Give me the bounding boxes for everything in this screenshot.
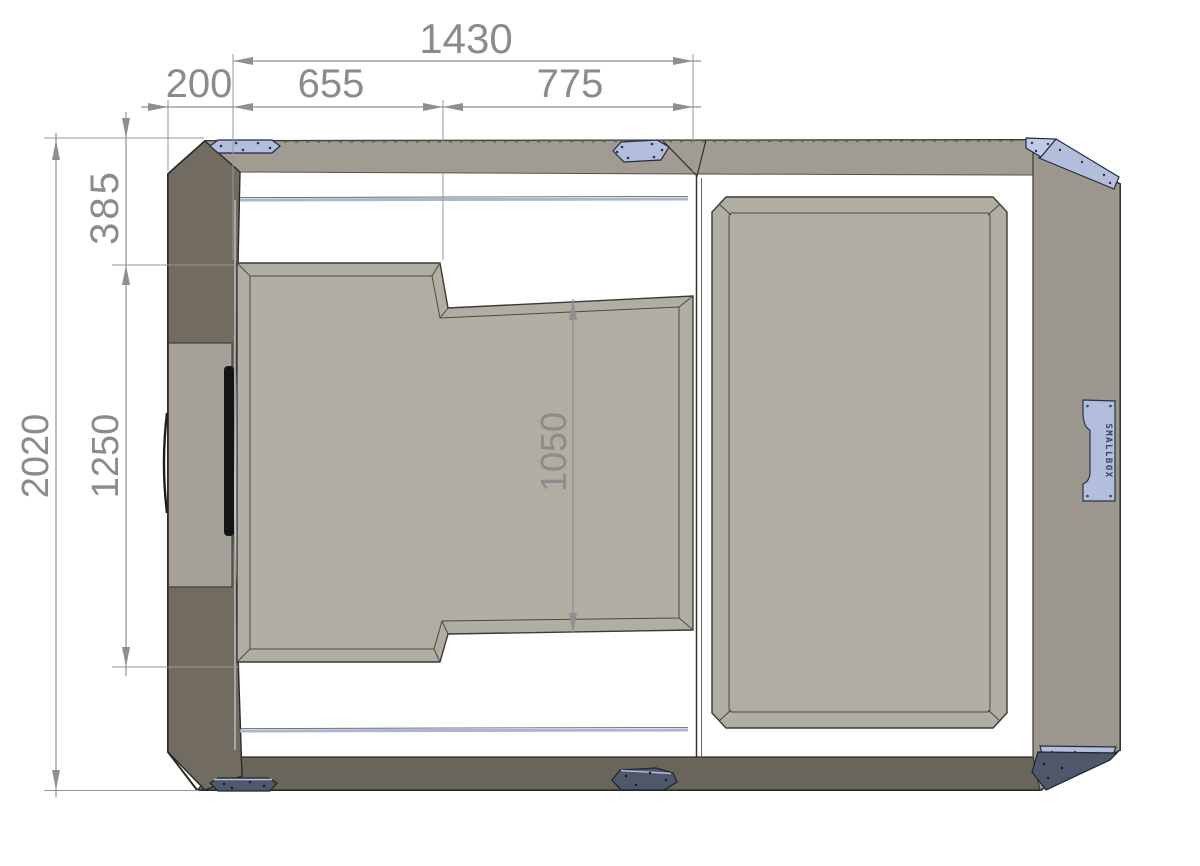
logo-text: SMALLBOX xyxy=(1103,423,1113,478)
bracket-top-left xyxy=(210,140,280,153)
technical-drawing-page: SMALLBOX xyxy=(0,0,1200,866)
bracket-bottom-middle xyxy=(612,768,677,790)
right-cover-panel xyxy=(712,197,1007,728)
lid-top-seam-blue xyxy=(240,199,688,200)
dim-inner-length: 1050 xyxy=(533,412,574,492)
dim-segment-left: 655 xyxy=(298,62,365,106)
dim-overall-length: 2020 xyxy=(15,414,57,499)
lid-panel-outer xyxy=(237,263,693,662)
dim-opening-length: 1250 xyxy=(85,414,127,499)
bracket-bottom-left xyxy=(210,778,277,791)
bracket-top-middle xyxy=(613,140,669,162)
dim-segment-right: 775 xyxy=(537,62,604,106)
bracket-bottom-right xyxy=(1032,746,1117,790)
lid-bottom-seam-blue xyxy=(240,730,688,731)
dim-overall-width: 1430 xyxy=(419,15,512,62)
lid-top-seam-shadow xyxy=(240,197,688,198)
dim-wall-offset: 200 xyxy=(166,62,233,106)
right-panel-outer xyxy=(712,197,1007,728)
box-top-view-drawing: SMALLBOX xyxy=(0,0,1200,866)
left-side-door xyxy=(169,343,232,587)
lid-bottom-seam-shadow xyxy=(240,728,688,729)
door-handle xyxy=(224,366,234,536)
lid-panel xyxy=(237,263,693,662)
dim-top-inset: 385 xyxy=(83,169,127,245)
door-handle-recess-curve xyxy=(164,413,167,513)
